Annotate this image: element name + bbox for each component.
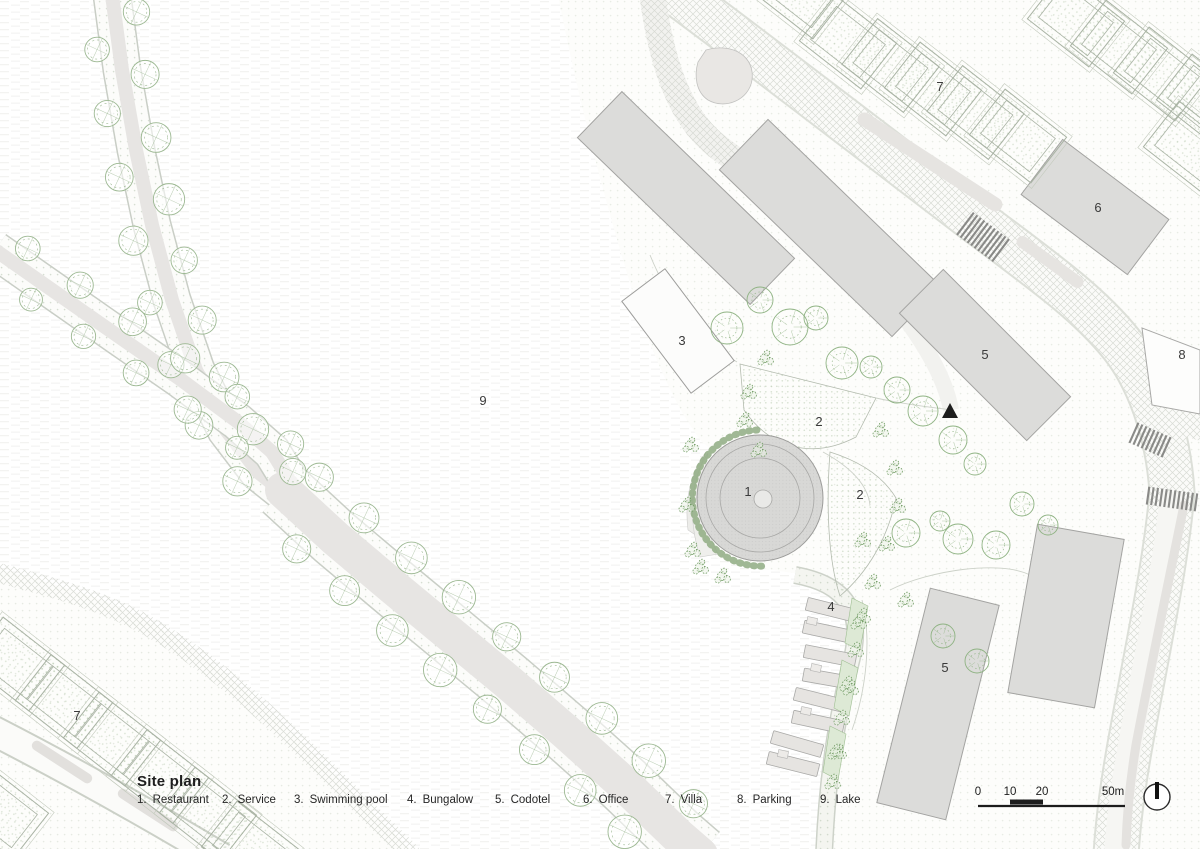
tree-icon xyxy=(174,396,201,423)
tree-icon xyxy=(330,576,360,606)
tree-icon xyxy=(377,615,409,647)
scale-tick-10: 10 xyxy=(1004,786,1017,798)
tree-icon xyxy=(71,324,95,348)
tree-icon xyxy=(632,744,665,777)
tree-icon xyxy=(473,695,501,723)
tree-icon xyxy=(141,123,171,153)
label-swimming-pool: 3 xyxy=(678,333,685,348)
tree-icon xyxy=(119,226,148,255)
tree-icon xyxy=(283,535,311,563)
tree-icon xyxy=(226,436,249,459)
tree-icon xyxy=(586,703,618,735)
tree-icon xyxy=(493,623,521,651)
label-codotel-upper: 5 xyxy=(981,347,988,362)
site-plan-canvas: 1 2 2 3 4 5 5 6 7 7 8 9 0 10 20 50m xyxy=(0,0,1200,849)
tree-icon xyxy=(396,542,428,574)
tree-icon xyxy=(423,653,456,686)
label-parking: 8 xyxy=(1178,347,1185,362)
tree-icon xyxy=(105,163,133,191)
tree-icon xyxy=(280,458,306,484)
tree-icon xyxy=(94,100,120,126)
tree-icon xyxy=(225,384,250,409)
label-bungalow: 4 xyxy=(827,599,834,614)
tree-icon xyxy=(349,503,379,533)
tree-icon xyxy=(123,0,149,25)
scale-tick-0: 0 xyxy=(975,786,981,798)
label-villa-top: 7 xyxy=(936,79,943,94)
tree-icon xyxy=(223,467,252,496)
label-villa-bottom: 7 xyxy=(73,708,80,723)
tree-icon xyxy=(519,735,549,765)
tree-icon xyxy=(20,288,43,311)
tree-icon xyxy=(153,184,184,215)
scale-tick-20: 20 xyxy=(1036,786,1049,798)
label-office: 6 xyxy=(1094,200,1101,215)
tree-icon xyxy=(188,306,216,334)
tree-icon xyxy=(123,360,149,386)
label-restaurant: 1 xyxy=(744,484,751,499)
tree-icon xyxy=(278,431,304,457)
tree-icon xyxy=(15,236,40,261)
label-lake: 9 xyxy=(479,393,486,408)
tree-icon xyxy=(305,463,333,491)
site-plan-drawing: 1 2 2 3 4 5 5 6 7 7 8 9 0 10 20 50m Site… xyxy=(0,0,1200,849)
tree-icon xyxy=(131,60,159,88)
dropoff-island xyxy=(696,48,752,104)
tree-icon xyxy=(119,308,147,336)
tree-icon xyxy=(679,790,707,818)
tree-icon xyxy=(67,272,93,298)
scale-tick-50m: 50m xyxy=(1102,786,1124,798)
tree-icon xyxy=(171,247,197,273)
tree-icon xyxy=(608,815,641,848)
label-service-lower: 2 xyxy=(856,487,863,502)
tree-icon xyxy=(540,662,570,692)
label-service-upper: 2 xyxy=(815,414,822,429)
tree-icon xyxy=(85,37,110,62)
tree-icon xyxy=(171,344,200,373)
tree-icon xyxy=(442,580,475,613)
label-codotel-lower: 5 xyxy=(941,660,948,675)
tree-icon xyxy=(564,775,596,807)
